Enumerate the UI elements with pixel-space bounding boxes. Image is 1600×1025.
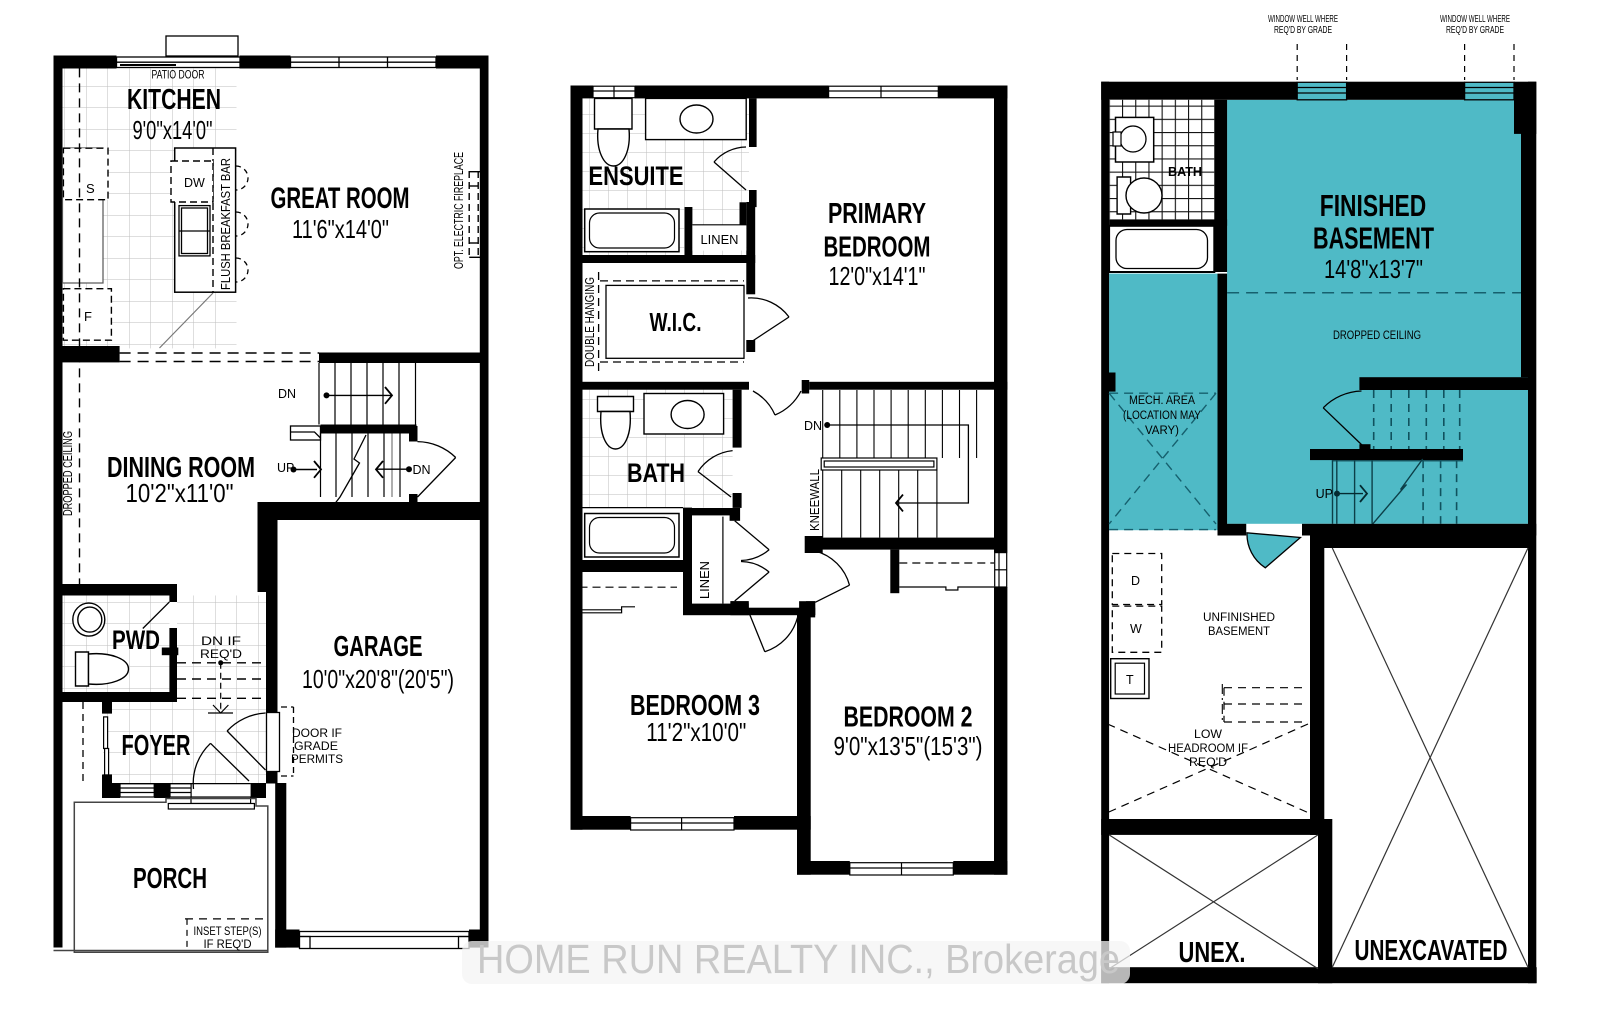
svg-text:KNEEWALL: KNEEWALL (808, 469, 822, 531)
svg-text:VARY): VARY) (1145, 425, 1179, 437)
svg-text:REQ'D: REQ'D (200, 647, 242, 661)
svg-text:LINEN: LINEN (698, 561, 712, 599)
svg-text:UNEXCAVATED: UNEXCAVATED (1355, 935, 1508, 967)
svg-text:UP: UP (1316, 487, 1333, 501)
svg-text:LINEN: LINEN (701, 233, 739, 247)
svg-text:FOYER: FOYER (122, 730, 191, 762)
svg-text:9'0"x13'5"(15'3"): 9'0"x13'5"(15'3") (834, 731, 983, 761)
svg-text:PORCH: PORCH (133, 863, 207, 895)
svg-text:GRADE: GRADE (294, 739, 338, 753)
svg-text:IF REQ'D: IF REQ'D (204, 937, 252, 951)
svg-text:F: F (84, 309, 92, 324)
svg-text:REQ'D BY GRADE: REQ'D BY GRADE (1274, 24, 1332, 36)
svg-text:INSET STEP(S): INSET STEP(S) (194, 924, 262, 938)
svg-text:11'2"x10'0": 11'2"x10'0" (646, 717, 746, 747)
svg-text:DN: DN (278, 387, 296, 401)
svg-text:HOME RUN REALTY INC., Brokerag: HOME RUN REALTY INC., Brokerage (477, 936, 1120, 982)
svg-text:GARAGE: GARAGE (334, 631, 423, 663)
svg-text:BEDROOM 2: BEDROOM 2 (844, 702, 973, 734)
svg-text:DROPPED CEILING: DROPPED CEILING (1333, 330, 1421, 342)
svg-text:REQ'D: REQ'D (1189, 757, 1227, 769)
svg-text:S: S (86, 181, 95, 196)
svg-text:FINISHED: FINISHED (1320, 188, 1427, 223)
svg-text:DW: DW (184, 176, 205, 190)
svg-text:BASEMENT: BASEMENT (1313, 221, 1434, 256)
svg-text:10'2"x11'0": 10'2"x11'0" (126, 478, 234, 508)
svg-text:9'0"x14'0": 9'0"x14'0" (133, 115, 213, 145)
svg-text:W: W (1130, 622, 1142, 636)
svg-text:LOW: LOW (1194, 729, 1222, 741)
svg-text:UNEX.: UNEX. (1179, 937, 1246, 969)
svg-text:GREAT ROOM: GREAT ROOM (271, 182, 410, 215)
svg-text:HEADROOM IF: HEADROOM IF (1168, 743, 1248, 755)
svg-text:BASEMENT: BASEMENT (1208, 626, 1270, 638)
svg-text:FLUSH BREAKFAST BAR: FLUSH BREAKFAST BAR (219, 158, 233, 290)
svg-text:MECH. AREA: MECH. AREA (1129, 395, 1195, 407)
svg-text:14'8"x13'7": 14'8"x13'7" (1324, 254, 1423, 284)
svg-text:PWD: PWD (112, 625, 160, 655)
svg-text:DOOR IF: DOOR IF (292, 726, 342, 740)
svg-text:W.I.C.: W.I.C. (650, 307, 702, 337)
svg-text:11'6"x14'0": 11'6"x14'0" (292, 214, 389, 244)
svg-text:BATH: BATH (627, 458, 685, 488)
svg-text:DN: DN (413, 463, 431, 477)
svg-text:BATH: BATH (1168, 164, 1202, 179)
svg-text:D: D (1131, 574, 1140, 588)
svg-text:BEDROOM: BEDROOM (824, 232, 931, 264)
svg-text:DOUBLE HANGING: DOUBLE HANGING (583, 277, 597, 367)
svg-text:REQ'D BY GRADE: REQ'D BY GRADE (1446, 24, 1504, 36)
svg-text:DN IF: DN IF (201, 634, 241, 648)
svg-text:PRIMARY: PRIMARY (828, 198, 926, 230)
svg-text:UNFINISHED: UNFINISHED (1203, 612, 1275, 624)
svg-text:T: T (1126, 673, 1134, 687)
svg-text:DN: DN (804, 419, 822, 433)
svg-text:12'0"x14'1": 12'0"x14'1" (829, 261, 926, 291)
svg-text:DROPPED CEILING: DROPPED CEILING (61, 431, 75, 516)
svg-text:KITCHEN: KITCHEN (127, 84, 221, 116)
svg-text:PATIO DOOR: PATIO DOOR (152, 70, 205, 82)
svg-text:PERMITS: PERMITS (291, 752, 343, 766)
svg-text:10'0"x20'8"(20'5"): 10'0"x20'8"(20'5") (302, 664, 454, 694)
svg-text:OPT. ELECTRIC FIREPLACE: OPT. ELECTRIC FIREPLACE (452, 152, 466, 269)
svg-text:(LOCATION MAY: (LOCATION MAY (1123, 410, 1201, 422)
svg-text:ENSUITE: ENSUITE (589, 161, 684, 191)
